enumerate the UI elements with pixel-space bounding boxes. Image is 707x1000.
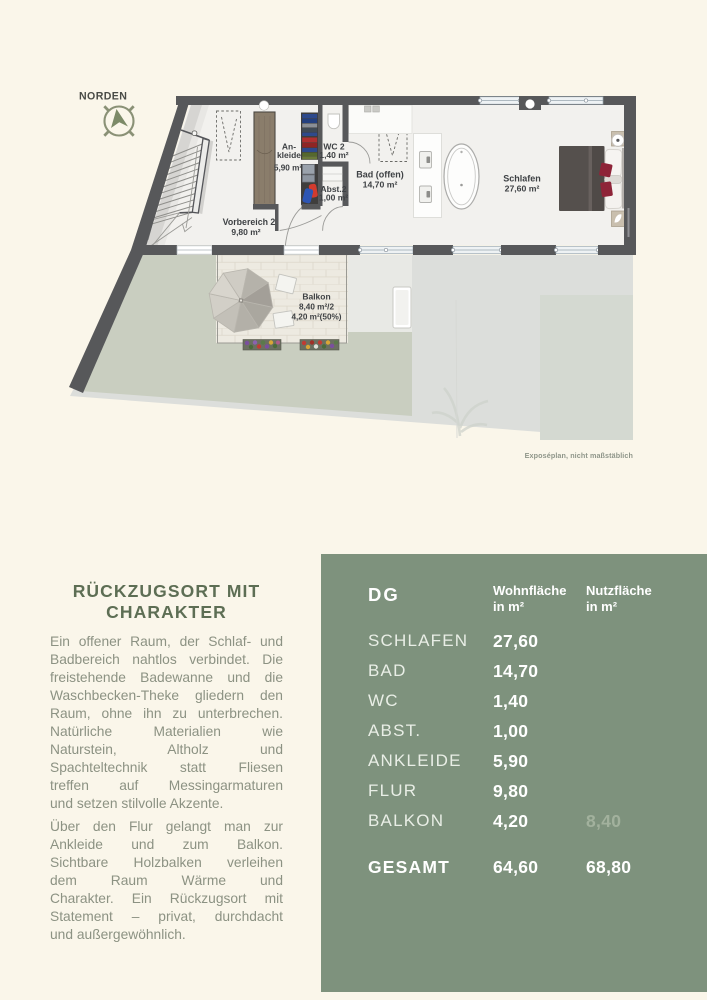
svg-text:9,80 m²: 9,80 m² <box>231 227 260 237</box>
svg-text:14,70 m²: 14,70 m² <box>363 180 398 190</box>
svg-text:kleide: kleide <box>277 150 301 160</box>
svg-text:5,90 m²: 5,90 m² <box>274 164 302 173</box>
svg-text:1,40 m²: 1,40 m² <box>319 150 348 160</box>
svg-text:Schlafen: Schlafen <box>503 174 541 184</box>
svg-text:Balkon: Balkon <box>302 292 330 302</box>
svg-text:1,00 m²: 1,00 m² <box>319 193 348 203</box>
svg-text:Bad (offen): Bad (offen) <box>356 170 404 180</box>
svg-text:NORDEN: NORDEN <box>79 91 127 103</box>
svg-text:Vorbereich 2: Vorbereich 2 <box>223 217 276 227</box>
svg-text:4,20 m²(50%): 4,20 m²(50%) <box>291 313 341 322</box>
svg-text:8,40 m²/2: 8,40 m²/2 <box>299 303 334 312</box>
svg-text:27,60 m²: 27,60 m² <box>505 184 540 194</box>
